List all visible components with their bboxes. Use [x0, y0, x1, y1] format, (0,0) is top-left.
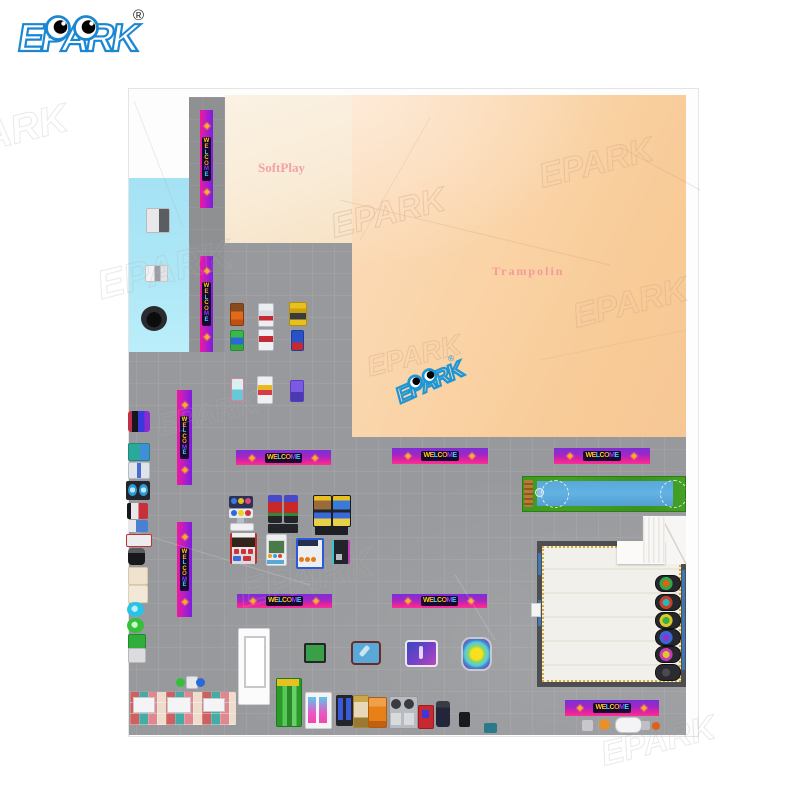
svg-text:®: ® [133, 7, 144, 24]
